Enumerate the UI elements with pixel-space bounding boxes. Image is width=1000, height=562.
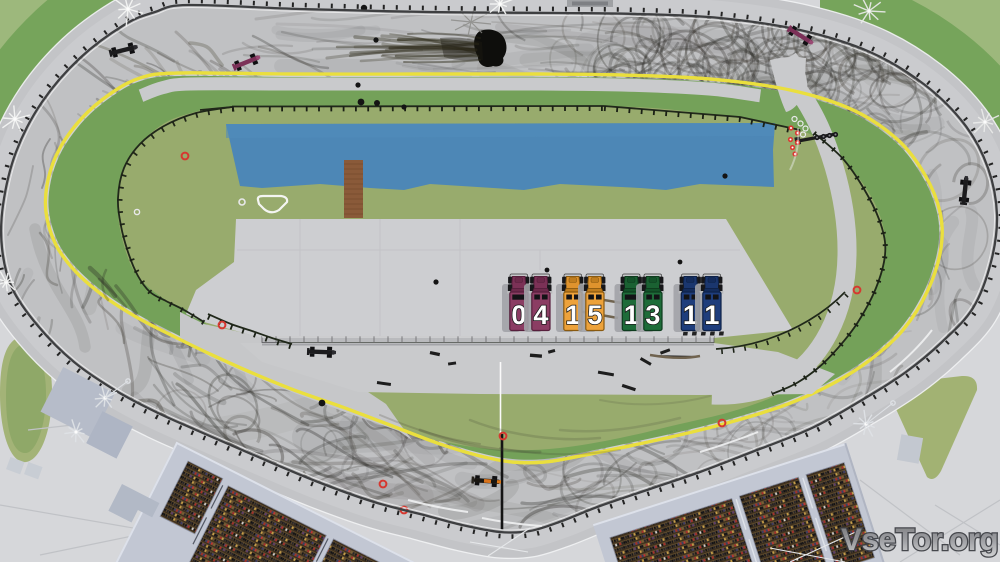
svg-text:3: 3 [645, 300, 660, 330]
svg-text:5: 5 [587, 300, 602, 330]
svg-text:1: 1 [704, 300, 719, 330]
svg-text:VseTor.org: VseTor.org [841, 521, 998, 557]
svg-text:4: 4 [533, 300, 548, 330]
